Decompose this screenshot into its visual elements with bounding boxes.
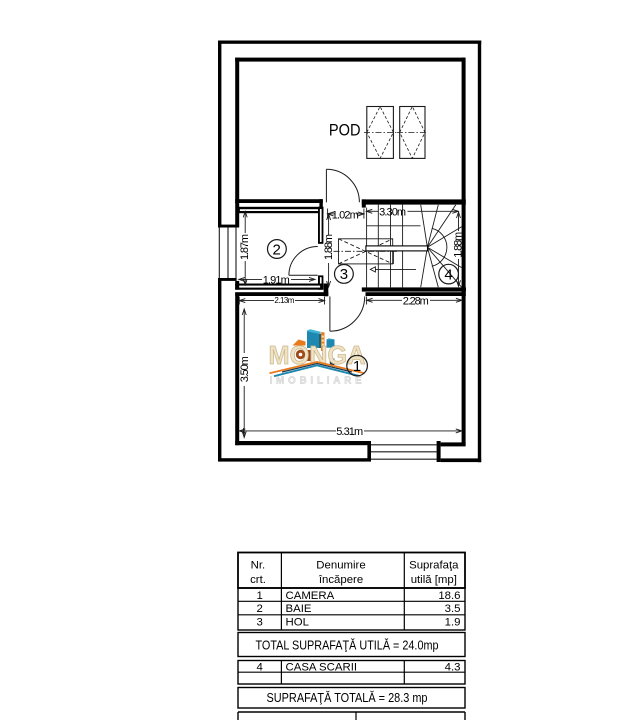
svg-text:1.87m: 1.87m: [239, 234, 251, 260]
svg-text:4: 4: [257, 662, 263, 674]
svg-text:3: 3: [340, 266, 348, 283]
svg-text:1: 1: [257, 590, 263, 602]
svg-text:SUPRAFAŢĂ TOTALĂ = 28.3 mp: SUPRAFAŢĂ TOTALĂ = 28.3 mp: [267, 690, 428, 705]
svg-text:Nr.: Nr.: [251, 559, 266, 571]
svg-text:crt.: crt.: [250, 574, 266, 586]
svg-text:2: 2: [273, 241, 281, 258]
svg-text:1.91m: 1.91m: [263, 274, 290, 286]
svg-text:POD: POD: [329, 121, 361, 140]
svg-text:HOL: HOL: [286, 617, 309, 629]
svg-text:Suprafaţa: Suprafaţa: [409, 559, 459, 571]
svg-text:3: 3: [257, 617, 263, 629]
svg-text:2.13m: 2.13m: [274, 296, 294, 305]
svg-text:3.5: 3.5: [445, 603, 461, 615]
svg-text:CAMERA: CAMERA: [286, 590, 335, 602]
svg-text:1.9: 1.9: [445, 617, 461, 629]
svg-text:1.88m: 1.88m: [323, 234, 335, 260]
svg-text:TOTAL SUPRAFAŢĂ UTILĂ = 24.0mp: TOTAL SUPRAFAŢĂ UTILĂ = 24.0mp: [256, 638, 439, 653]
svg-text:2: 2: [257, 603, 263, 615]
svg-text:4: 4: [444, 266, 452, 283]
svg-text:1: 1: [353, 358, 361, 375]
svg-text:Denumire: Denumire: [316, 559, 365, 571]
svg-text:18.6: 18.6: [438, 590, 460, 602]
svg-text:2.28m: 2.28m: [403, 295, 429, 307]
svg-text:BAIE: BAIE: [286, 603, 312, 615]
svg-text:5.31m: 5.31m: [336, 426, 363, 438]
svg-text:3.50m: 3.50m: [239, 356, 251, 382]
svg-text:utilă [mp]: utilă [mp]: [411, 574, 457, 586]
svg-text:4.3: 4.3: [445, 662, 461, 674]
svg-text:IMOBILIARE: IMOBILIARE: [270, 375, 366, 387]
svg-text:3.30m: 3.30m: [379, 206, 406, 218]
svg-text:încăpere: încăpere: [318, 574, 363, 586]
svg-text:1.88m: 1.88m: [452, 232, 464, 258]
svg-text:1.02m: 1.02m: [332, 210, 359, 222]
svg-text:CASA SCARII: CASA SCARII: [286, 662, 358, 674]
